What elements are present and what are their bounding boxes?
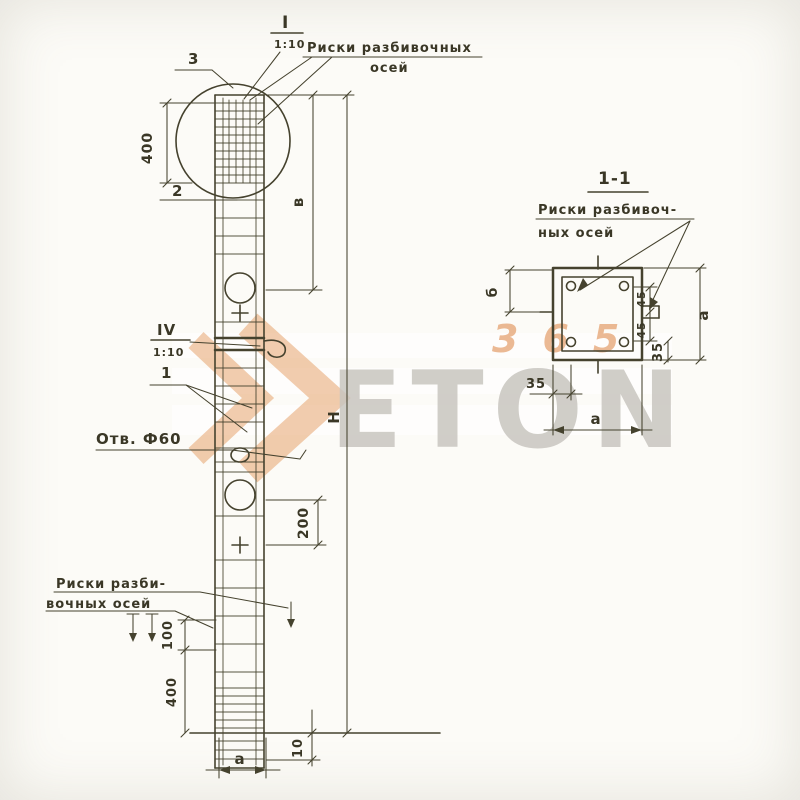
dim-bottom-35: 35: [526, 377, 546, 392]
callout-2: 2: [172, 182, 183, 200]
dim-100: 100: [161, 620, 176, 650]
dim-10: 10: [291, 738, 306, 758]
drawing-page: ETON 365: [0, 0, 800, 800]
center-mark-2: [232, 537, 248, 553]
dim-right-35: 35: [651, 342, 666, 362]
dim-bottom-a: а: [590, 410, 601, 428]
mark-arrows: [127, 602, 295, 642]
dim-left-b: б: [485, 287, 501, 298]
detail-marker-mid-scale: 1:10: [153, 346, 184, 359]
detail-circle: [176, 84, 290, 198]
riski-bottom-line1: Риски разби-: [56, 577, 166, 592]
riski-top-line1: Риски разбивочных: [307, 41, 472, 56]
dim-top-400: 400: [140, 132, 156, 164]
section-riski-line1: Риски разбивоч-: [538, 203, 677, 218]
detail-marker-top-scale: 1:10: [274, 38, 305, 51]
section-riski-line2: ных осей: [538, 226, 614, 241]
dim-right-45b: 45: [635, 321, 648, 338]
watermark-letters: ETON: [330, 349, 690, 472]
dim-width-a: а: [234, 750, 245, 768]
top-mesh: [229, 100, 250, 183]
riski-bottom-line2: вочных осей: [46, 597, 151, 612]
detail-marker-top-numeral: I: [282, 13, 289, 33]
dim-200: 200: [296, 507, 312, 539]
riski-top-line2: осей: [370, 61, 409, 76]
lifting-loop-2: [225, 480, 255, 510]
detail-marker-mid-numeral: IV: [157, 321, 176, 339]
hole-label: Отв. Ф60: [96, 430, 182, 448]
dim-v: в: [289, 197, 307, 208]
center-mark-1: [232, 305, 248, 321]
callout-3: 3: [188, 50, 199, 68]
callout-1: 1: [161, 364, 172, 382]
stirrups-top: [215, 103, 264, 183]
dim-bottom-400: 400: [165, 677, 180, 707]
technical-drawing: ETON 365: [0, 0, 800, 800]
section-title: 1-1: [598, 169, 632, 189]
lifting-loop-1: [225, 273, 255, 303]
dim-right-a: а: [694, 309, 712, 320]
watermark: ETON 365: [172, 317, 690, 472]
dim-H: Н: [325, 410, 343, 424]
dim-right-45a: 45: [635, 290, 648, 307]
stirrups-bottom: [215, 688, 264, 759]
